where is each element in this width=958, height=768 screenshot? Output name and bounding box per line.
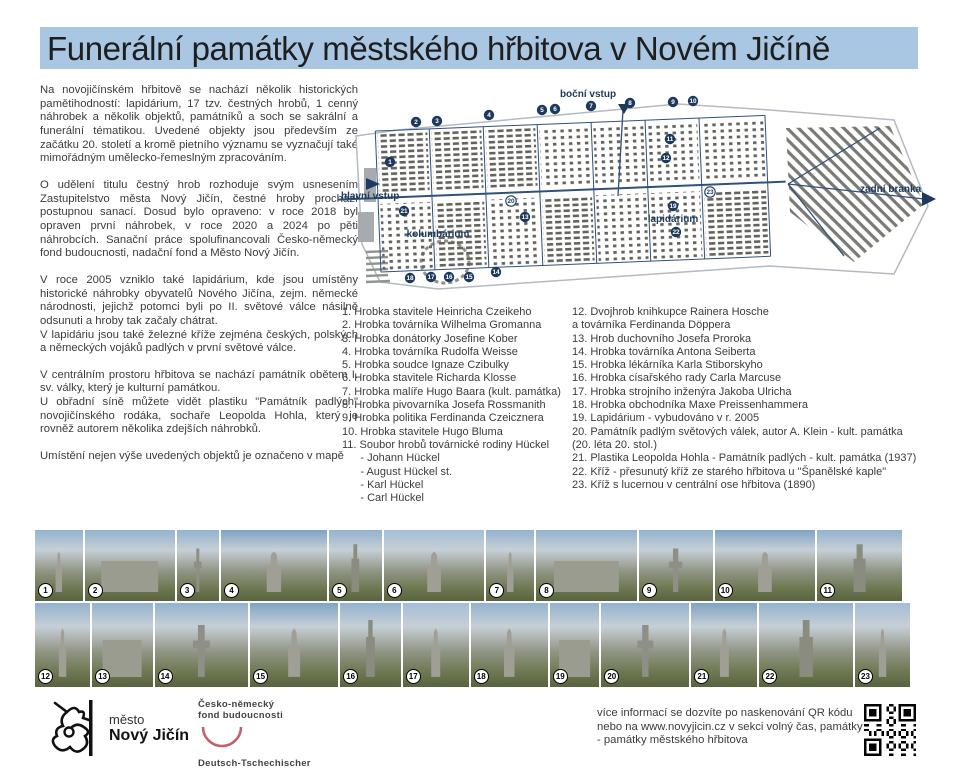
monument-photo: 11 xyxy=(817,530,902,601)
photo-strip-row-1: 1 2 3 4 5 6 7 xyxy=(35,530,902,601)
map-marker-number: 15 xyxy=(465,274,473,281)
map-marker-number: 6 xyxy=(553,106,557,113)
fund-logo-top2: fond budoucnosti xyxy=(198,710,348,721)
map-marker-number: 19 xyxy=(669,203,677,210)
photo-number-badge: 6 xyxy=(387,583,402,598)
rear-gate-arrow-icon xyxy=(922,192,936,206)
monument-photo: 13 xyxy=(92,603,153,687)
photo-number-badge: 3 xyxy=(180,583,195,598)
title-bar: Funerální památky městského hřbitova v N… xyxy=(40,27,918,69)
cemetery-poster: Funerální památky městského hřbitova v N… xyxy=(0,0,958,768)
list-item: 4. Hrobka továrníka Rudolfa Weisse xyxy=(342,346,582,359)
monument-photo: 10 xyxy=(715,530,816,601)
page-title: Funerální památky městského hřbitova v N… xyxy=(40,27,918,70)
map-marker-number: 4 xyxy=(487,112,491,119)
map-marker-number: 7 xyxy=(589,103,593,110)
cemetery-map: hlavní vstup boční vstup zadní branka ko… xyxy=(338,84,938,298)
monument-photo: 22 xyxy=(759,603,853,687)
fund-logo-arc-icon xyxy=(200,725,244,751)
map-marker-number: 8 xyxy=(628,100,632,107)
list-item: 17. Hrobka strojního inženýra Jakoba Ulr… xyxy=(572,386,938,399)
map-marker-number: 14 xyxy=(492,269,500,276)
monument-photo: 2 xyxy=(85,530,175,601)
monument-photo: 6 xyxy=(384,530,485,601)
monument-list-left: 1. Hrobka stavitele Heinricha Czeikeho2.… xyxy=(342,306,582,505)
map-marker-number: 17 xyxy=(427,274,435,281)
photo-number-badge: 4 xyxy=(224,583,239,598)
monument-photo: 18 xyxy=(471,603,548,687)
list-item: a továrníka Ferdinanda Döppera xyxy=(572,319,938,332)
map-marker-number: 13 xyxy=(521,214,529,221)
photo-number-badge: 8 xyxy=(539,583,554,598)
list-item: 16. Hrobka císařského rady Carla Marcuse xyxy=(572,372,938,385)
list-item: 18. Hrobka obchodníka Maxe Preissenhamme… xyxy=(572,399,938,412)
map-label-side-entrance: boční vstup xyxy=(560,89,616,100)
map-marker-number: 9 xyxy=(671,99,675,106)
map-marker-number: 22 xyxy=(672,229,680,236)
list-item: 7. Hrobka malíře Hugo Baara (kult. památ… xyxy=(342,386,582,399)
map-marker-number: 10 xyxy=(689,98,697,105)
list-item: (20. léta 20. stol.) xyxy=(572,439,938,452)
monument-photo: 23 xyxy=(855,603,910,687)
monument-photo: 15 xyxy=(250,603,338,687)
list-item: 23. Kříž s lucernou v centrální ose hřbi… xyxy=(572,479,938,492)
monument-photo: 16 xyxy=(340,603,401,687)
monument-photo: 3 xyxy=(177,530,219,601)
map-label-rear-gate: zadní branka xyxy=(860,184,922,195)
map-marker-number: 3 xyxy=(435,118,439,125)
photo-number-badge: 18 xyxy=(474,669,489,684)
monument-photo: 7 xyxy=(486,530,534,601)
photo-number-badge: 22 xyxy=(762,669,777,684)
photo-number-badge: 17 xyxy=(406,669,421,684)
map-label-lapidarium: lapidárium xyxy=(648,214,699,225)
photo-strip-row-2: 12 13 14 15 16 17 18 xyxy=(35,603,910,687)
list-item: 13. Hrob duchovního Josefa Proroka xyxy=(572,333,938,346)
monument-photo: 5 xyxy=(329,530,382,601)
map-marker-number: 23 xyxy=(706,189,714,196)
intro-text: Na novojičínském hřbitově se nachází něk… xyxy=(40,84,358,477)
map-marker-number: 12 xyxy=(662,155,670,162)
photo-number-badge: 2 xyxy=(88,583,103,598)
monument-photo: 9 xyxy=(639,530,713,601)
list-item: 19. Lapidárium - vybudováno v r. 2005 xyxy=(572,412,938,425)
map-marker-number: 11 xyxy=(667,136,674,143)
map-marker-number: 1 xyxy=(388,159,392,166)
list-item: 6. Hrobka stavitele Richarda Klosse xyxy=(342,372,582,385)
map-label-columbarium: kolumbárium xyxy=(407,229,470,240)
list-item: 21. Plastika Leopolda Hohla - Památník p… xyxy=(572,452,938,465)
monument-photo: 1 xyxy=(35,530,83,601)
map-label-main-entrance: hlavní vstup xyxy=(341,191,399,202)
photo-number-badge: 14 xyxy=(158,669,173,684)
photo-number-badge: 21 xyxy=(694,669,709,684)
photo-number-badge: 16 xyxy=(343,669,358,684)
intro-paragraph: V centrálním prostoru hřbitova se nacház… xyxy=(40,369,358,437)
list-item: 22. Kříž - přesunutý kříž ze starého hřb… xyxy=(572,466,938,479)
photo-number-badge: 12 xyxy=(38,669,53,684)
list-item: 11. Soubor hrobů továrnické rodiny Hücke… xyxy=(342,439,582,452)
map-marker-number: 20 xyxy=(507,198,515,205)
list-item: 3. Hrobka donátorky Josefine Kober xyxy=(342,333,582,346)
monument-photo: 4 xyxy=(221,530,327,601)
list-item: 8. Hrobka pivovarníka Josefa Rossmanith xyxy=(342,399,582,412)
city-logo-line1: město xyxy=(109,712,189,727)
photo-number-badge: 1 xyxy=(38,583,53,598)
monument-photo: 8 xyxy=(536,530,637,601)
list-item: - Karl Hückel xyxy=(342,479,582,492)
monument-photo: 20 xyxy=(601,603,689,687)
list-item: - Carl Hückel xyxy=(342,492,582,505)
intro-paragraph: V roce 2005 vzniklo také lapidárium, kde… xyxy=(40,274,358,356)
photo-number-badge: 20 xyxy=(604,669,619,684)
list-item: 10. Hrobka stavitele Hugo Bluma xyxy=(342,426,582,439)
list-item: 1. Hrobka stavitele Heinricha Czeikeho xyxy=(342,306,582,319)
intro-paragraph: Umístění nejen výše uvedených objektů je… xyxy=(40,450,358,464)
photo-number-badge: 19 xyxy=(553,669,568,684)
intro-paragraph: Na novojičínském hřbitově se nachází něk… xyxy=(40,84,358,166)
photo-number-badge: 9 xyxy=(642,583,657,598)
qr-code xyxy=(864,704,916,756)
monument-photo: 19 xyxy=(550,603,600,687)
city-logo: město Nový Jičín xyxy=(45,699,189,757)
map-marker-number: 18 xyxy=(406,275,414,282)
fund-logo-top1: Česko-německý xyxy=(198,699,348,710)
map-marker-number: 5 xyxy=(540,107,544,114)
list-item: 15. Hrobka lékárníka Karla Stiborskyho xyxy=(572,359,938,372)
monument-photo: 21 xyxy=(691,603,757,687)
intro-paragraph: O udělení titulu čestný hrob rozhoduje s… xyxy=(40,179,358,261)
photo-number-badge: 10 xyxy=(718,583,733,598)
qr-info-text: více informací se dozvíte po naskenování… xyxy=(597,707,865,748)
map-marker-number: 2 xyxy=(414,119,418,126)
photo-number-badge: 15 xyxy=(253,669,268,684)
list-item: 9. Hrobka politika Ferdinanda Czeicznera xyxy=(342,412,582,425)
list-item: 5. Hrobka soudce Ignaze Czibulky xyxy=(342,359,582,372)
monument-photo: 17 xyxy=(403,603,469,687)
list-item: 2. Hrobka továrníka Wilhelma Gromanna xyxy=(342,319,582,332)
photo-number-badge: 5 xyxy=(332,583,347,598)
monument-photo: 12 xyxy=(35,603,90,687)
list-item: 12. Dvojhrob knihkupce Rainera Hosche xyxy=(572,306,938,319)
list-item: 20. Památník padlým světových válek, aut… xyxy=(572,426,938,439)
list-item: - August Hückel st. xyxy=(342,466,582,479)
fund-logo-bottom1: Deutsch-Tschechischer xyxy=(198,758,348,768)
photo-number-badge: 11 xyxy=(820,583,835,598)
map-marker-number: 21 xyxy=(400,208,408,215)
city-logo-mark xyxy=(45,699,97,757)
list-item: - Johann Hückel xyxy=(342,452,582,465)
city-logo-line2: Nový Jičín xyxy=(109,727,189,745)
photo-number-badge: 13 xyxy=(95,669,110,684)
list-item: 14. Hrobka továrníka Antona Seiberta xyxy=(572,346,938,359)
photo-number-badge: 23 xyxy=(858,669,873,684)
map-marker-number: 16 xyxy=(445,274,453,281)
photo-number-badge: 7 xyxy=(489,583,504,598)
monument-list-right: 12. Dvojhrob knihkupce Rainera Hoschea t… xyxy=(572,306,938,492)
fund-logo: Česko-německý fond budoucnosti Deutsch-T… xyxy=(198,699,348,768)
monument-photo: 14 xyxy=(155,603,249,687)
